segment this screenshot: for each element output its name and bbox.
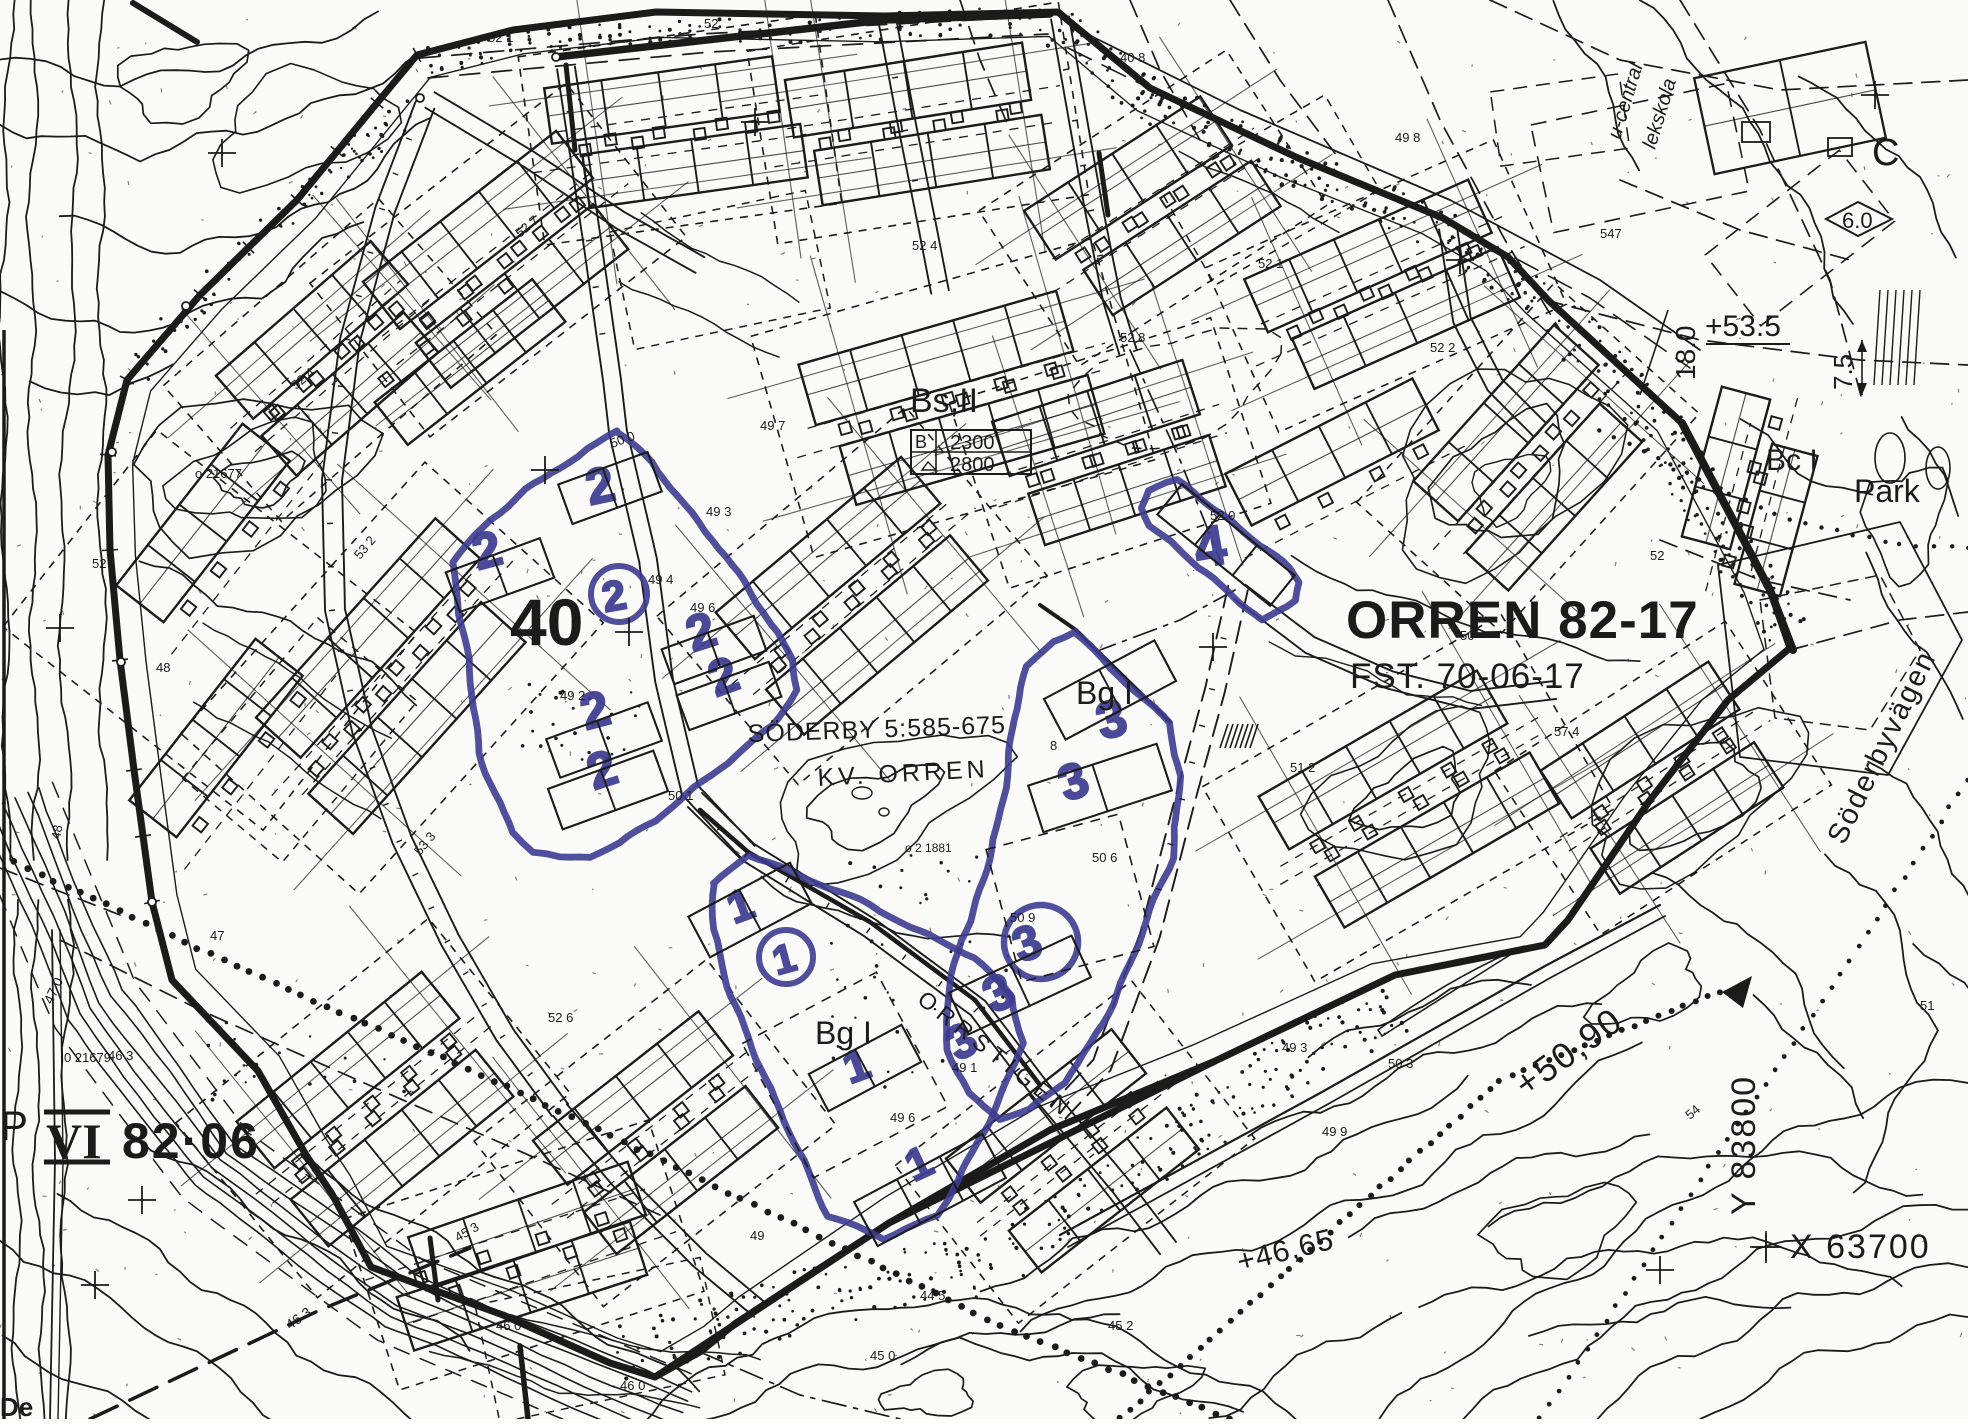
- svg-text:46 0: 46 0: [496, 1318, 521, 1333]
- svg-text:45 0: 45 0: [870, 1348, 895, 1363]
- svg-text:51 2: 51 2: [1290, 760, 1315, 775]
- svg-text:FST. 70-06-17: FST. 70-06-17: [1350, 657, 1585, 696]
- svg-text:51: 51: [1920, 998, 1934, 1013]
- svg-text:50 9: 50 9: [1010, 910, 1035, 925]
- svg-text:50: 50: [1460, 628, 1474, 643]
- svg-text:46 0: 46 0: [620, 1378, 645, 1393]
- svg-text:49: 49: [750, 1228, 764, 1243]
- svg-text:50 3: 50 3: [1388, 1056, 1413, 1071]
- svg-text:X 63700: X 63700: [1790, 1228, 1931, 1266]
- svg-text:8: 8: [1050, 738, 1057, 753]
- svg-text:P: P: [0, 1102, 28, 1149]
- svg-text:45 2: 45 2: [1108, 1318, 1133, 1333]
- svg-text:48: 48: [48, 824, 65, 841]
- svg-text:49 7: 49 7: [760, 418, 785, 433]
- svg-text:o 2 1881: o 2 1881: [905, 841, 952, 855]
- svg-text:52 2: 52 2: [1430, 340, 1455, 355]
- svg-text:2300: 2300: [950, 432, 995, 454]
- svg-text:+53.5: +53.5: [1705, 310, 1781, 343]
- svg-text:Bg I: Bg I: [815, 1015, 872, 1051]
- svg-text:52 0: 52 0: [1210, 508, 1235, 523]
- svg-text:7.5: 7.5: [1828, 354, 1858, 390]
- svg-text:52: 52: [1650, 548, 1664, 563]
- svg-text:82·06: 82·06: [122, 1113, 260, 1169]
- svg-text:44 5: 44 5: [920, 1288, 945, 1303]
- svg-text:49 3: 49 3: [706, 504, 731, 519]
- svg-text:49 2: 49 2: [560, 688, 585, 703]
- svg-text:ORREN 82-17: ORREN 82-17: [1346, 591, 1699, 650]
- svg-text:52 1: 52 1: [488, 30, 513, 45]
- svg-text:Park: Park: [1854, 473, 1921, 509]
- svg-text:52 8: 52 8: [1120, 330, 1145, 345]
- svg-text:Bc I: Bc I: [1766, 444, 1818, 477]
- svg-text:o 21677: o 21677: [195, 466, 242, 481]
- svg-text:50 1: 50 1: [668, 788, 693, 803]
- svg-text:52: 52: [92, 556, 106, 571]
- svg-text:6.0: 6.0: [1842, 208, 1873, 233]
- svg-text:49 6: 49 6: [690, 600, 715, 615]
- svg-text:48: 48: [156, 660, 170, 675]
- svg-text:Bg I: Bg I: [1076, 675, 1133, 711]
- svg-text:De: De: [0, 1392, 33, 1419]
- svg-text:50 6: 50 6: [1092, 850, 1117, 865]
- svg-text:C: C: [1872, 132, 1899, 174]
- svg-text:0 21679: 0 21679: [64, 1050, 111, 1065]
- svg-text:Bs,II: Bs,II: [910, 382, 978, 420]
- svg-text:57 4: 57 4: [1554, 724, 1579, 739]
- svg-text:47: 47: [210, 928, 224, 943]
- svg-text:52 4: 52 4: [912, 238, 937, 253]
- svg-text:49 1: 49 1: [952, 1060, 977, 1075]
- svg-text:46 3: 46 3: [108, 1048, 133, 1063]
- svg-text:40 8: 40 8: [1120, 50, 1145, 65]
- svg-text:49 6: 49 6: [890, 1110, 915, 1125]
- svg-text:2800: 2800: [950, 454, 995, 476]
- svg-text:49 9: 49 9: [1322, 1124, 1347, 1139]
- svg-text:49 3: 49 3: [1282, 1040, 1307, 1055]
- svg-text:52 6: 52 6: [548, 1010, 573, 1025]
- svg-text:B: B: [915, 432, 927, 452]
- svg-text:49 4: 49 4: [648, 572, 673, 587]
- svg-text:547: 547: [1600, 226, 1622, 241]
- svg-text:52: 52: [704, 16, 718, 31]
- svg-text:49 8: 49 8: [1395, 130, 1420, 145]
- svg-text:18.0: 18.0: [1670, 326, 1701, 381]
- svg-text:Y 83800: Y 83800: [1725, 1075, 1763, 1215]
